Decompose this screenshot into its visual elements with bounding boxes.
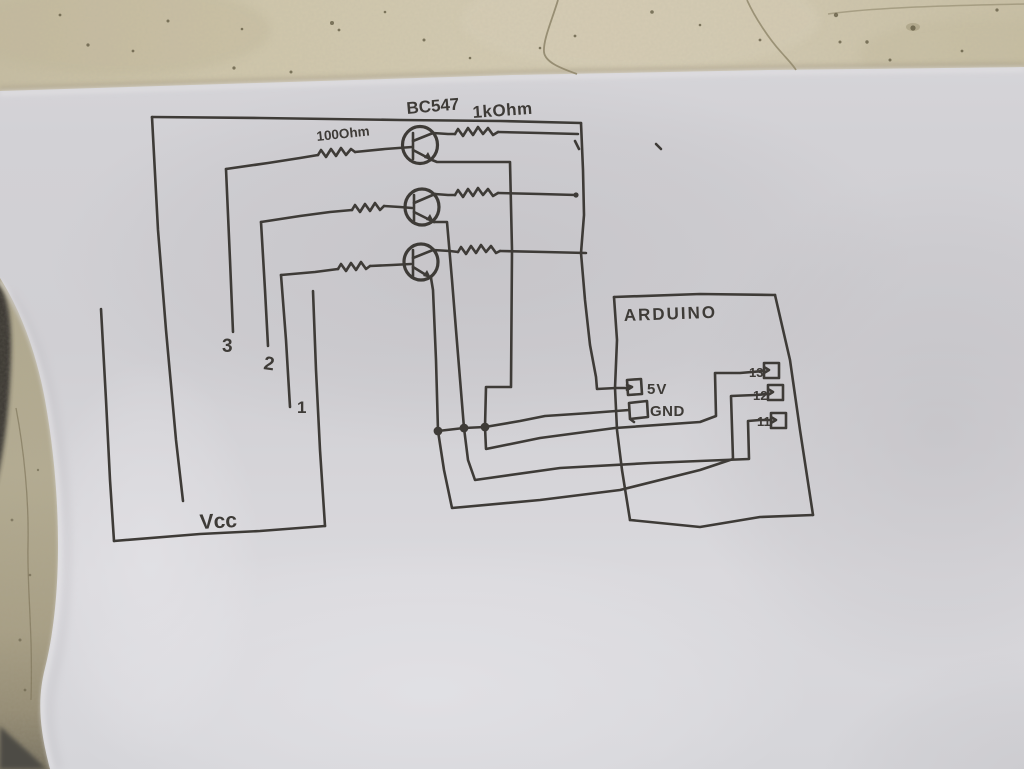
svg-text:13: 13 bbox=[749, 365, 763, 380]
svg-text:11: 11 bbox=[757, 414, 771, 429]
svg-text:5V: 5V bbox=[647, 381, 667, 398]
svg-text:GND: GND bbox=[650, 403, 685, 420]
svg-text:12: 12 bbox=[753, 388, 767, 403]
svg-text:3: 3 bbox=[222, 336, 233, 357]
svg-text:Vcc: Vcc bbox=[199, 509, 238, 534]
svg-text:ARDUINO: ARDUINO bbox=[623, 303, 717, 325]
svg-text:1: 1 bbox=[297, 398, 306, 417]
